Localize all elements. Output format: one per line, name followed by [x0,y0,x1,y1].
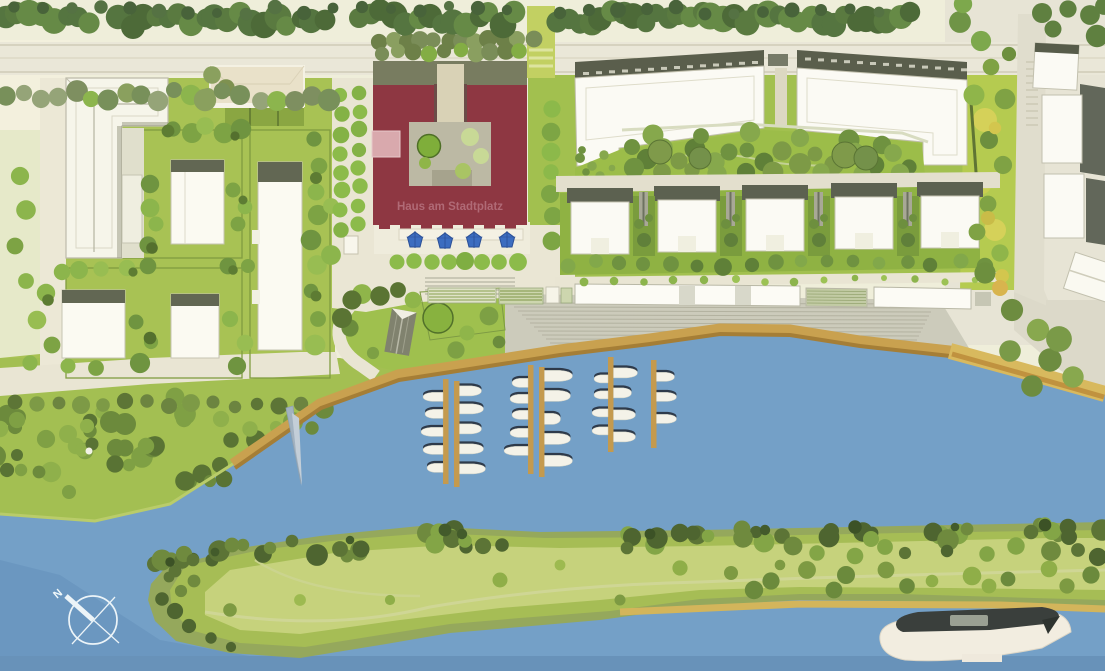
svg-text:Haus am Stadtplatz: Haus am Stadtplatz [397,201,503,213]
